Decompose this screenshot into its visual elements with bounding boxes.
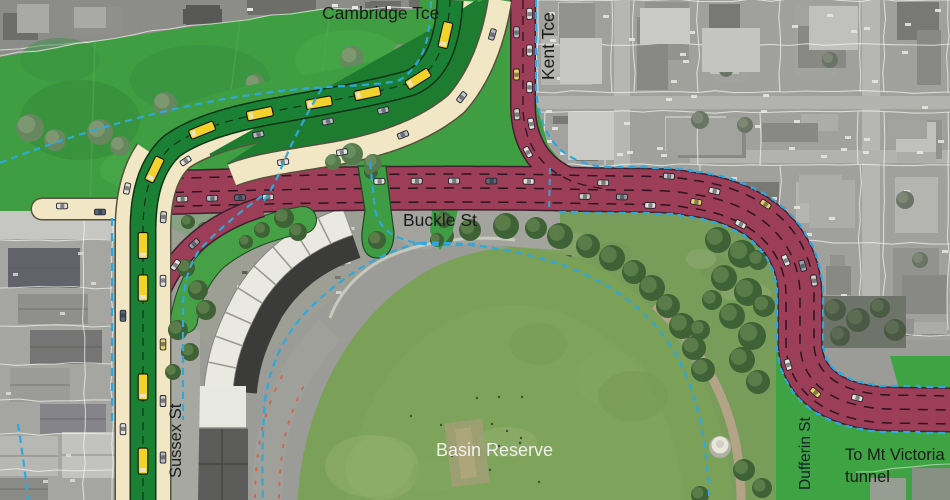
svg-text:Sussex St: Sussex St bbox=[167, 403, 185, 478]
svg-text:Basin Reserve: Basin Reserve bbox=[436, 440, 553, 460]
svg-text:Dufferin St: Dufferin St bbox=[797, 416, 814, 490]
svg-text:Cambridge Tce: Cambridge Tce bbox=[322, 3, 439, 23]
svg-text:Kent Tce: Kent Tce bbox=[538, 12, 558, 80]
svg-text:Buckle St: Buckle St bbox=[403, 210, 477, 230]
svg-text:To Mt Victoria: To Mt Victoria bbox=[845, 446, 945, 464]
svg-text:tunnel: tunnel bbox=[845, 468, 890, 486]
